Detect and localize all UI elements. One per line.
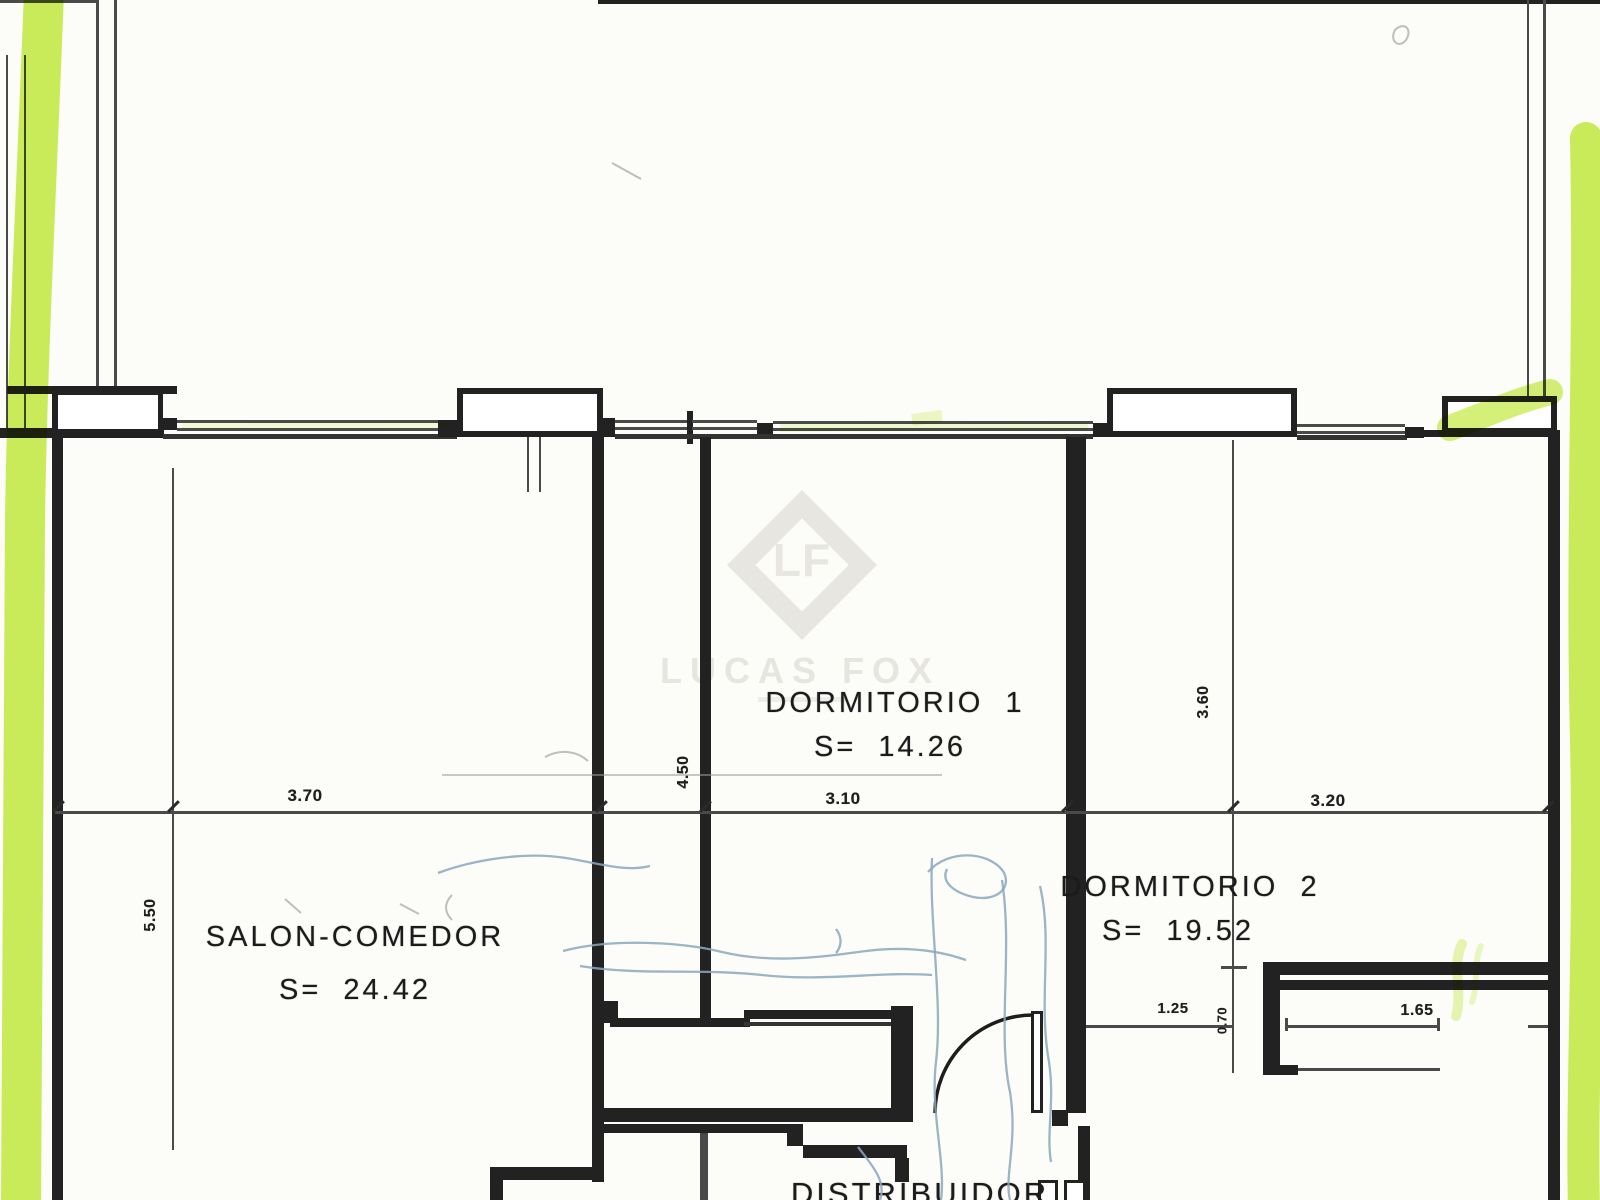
room-area-salon: S= 24.42	[205, 974, 505, 1007]
dimension-salon-depth: 5.50	[142, 885, 160, 945]
dimension-dorm1-depth: 4.50	[675, 742, 693, 802]
room-label-dormitorio-1: DORMITORIO 1	[745, 687, 1045, 720]
room-area-dormitorio-1: S= 14.26	[740, 731, 1040, 764]
dimension-dorm1-width: 3.10	[808, 789, 878, 809]
room-label-distribuidor: DISTRIBUIDOR	[770, 1176, 1070, 1200]
room-label-dormitorio-2: DORMITORIO 2	[1040, 871, 1340, 904]
room-area-dormitorio-2: S= 19.52	[1028, 915, 1328, 948]
dimension-dorm2-depth: 3.60	[1195, 672, 1213, 732]
label-layer: SALON-COMEDOR S= 24.42 DORMITORIO 1 S= 1…	[0, 0, 1600, 1200]
dimension-wardrobe-width: 1.65	[1392, 1002, 1442, 1020]
room-label-salon: SALON-COMEDOR	[205, 921, 505, 954]
floor-plan-canvas: LF LUCAS FOX SALON-COMEDOR S= 24.42 DORM…	[0, 0, 1600, 1200]
dimension-jamb-depth: 0.70	[1215, 991, 1230, 1051]
dimension-salon-width: 3.70	[270, 786, 340, 806]
dimension-opening-width: 1.25	[1148, 1000, 1198, 1017]
dimension-dorm2-width: 3.20	[1293, 791, 1363, 811]
